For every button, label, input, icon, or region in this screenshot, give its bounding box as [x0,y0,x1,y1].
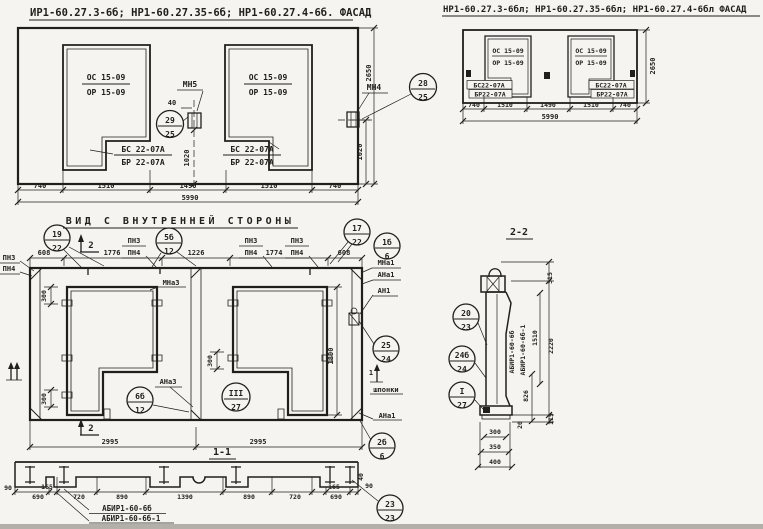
scan-edge-band [0,524,763,529]
dim-1490: 1490 [540,101,556,109]
pn4-label-left: ПН4 [3,265,16,273]
dim-1510b: 1510 [583,101,599,109]
pn3-label-3: ПН3 [291,237,304,245]
mna3-label: МНа3 [163,279,180,287]
callout-III: III [229,389,244,398]
pn3-label-1: ПН3 [128,237,141,245]
dim-20: 20 [516,421,524,429]
section1-marker-right: 1 [369,369,373,377]
dim-2650: 2650 [365,65,373,82]
dimension-ticks [15,25,377,205]
dim-690-r: 690 [330,493,342,501]
callout-25c: 25 [381,341,391,350]
section-2-2-drawing: 2-2 20 23 24б 24 I 27 АБИР1-60-6б АБИР1-… [449,227,555,470]
ana1-label: АНа1 [378,271,395,279]
dim-1510: 1510 [98,182,115,190]
dimension-lines [463,30,650,124]
pn4-label-2: ПН4 [245,249,258,257]
block2-mark-top: БС22-07А [595,82,626,90]
section2-marker-top: 2 [88,241,93,251]
callout-24: 24 [381,355,391,364]
callout-24d: 24 [457,365,467,374]
mna1-label: МНа1 [378,259,395,267]
dim-720-r: 720 [289,493,301,501]
callout-1b: 1б [382,237,392,247]
dim-300-c: 300 [206,355,214,367]
dim-2995-right: 2995 [250,438,267,446]
dim-1226: 1226 [188,249,205,257]
dim-740b: 740 [619,101,631,109]
dim-1490: 1490 [180,182,197,190]
dim-608-left: 608 [38,249,51,257]
dim-1390: 1390 [177,493,193,501]
dim-740: 740 [468,101,480,109]
dim-5990: 5990 [542,113,559,121]
anchor-plate-hatch [192,112,356,128]
dim-165-r: 165 [328,483,340,491]
axis-lines [194,100,372,186]
pn3-label-left: ПН3 [3,254,16,262]
block1-mark-bottom: БР22-07А [474,91,505,99]
blueprint-svg: ИР1-60.27.3-6б; НР1-60.27.35-6б; НР1-60.… [0,0,763,529]
section2-marker-bottom: 2 [88,424,93,434]
opening2-mark-bottom: ОР 15-09 [575,59,606,67]
block2-mark-top: БС 22-07А [230,145,274,154]
callout-19: 19 [52,230,62,239]
panel-mark-b: АБИР1-60-6б-1 [102,514,161,523]
dim-165-l: 165 [41,483,53,491]
dim-740b: 740 [329,182,342,190]
opening-inner-outlines [71,291,323,411]
dim-115: 115 [547,413,555,425]
shponki-label: шпонки [373,386,398,394]
anchor-block-hatch [487,276,499,292]
dim-90-r: 90 [365,482,373,490]
dim-5990: 5990 [182,194,199,202]
callout-23b: 23 [461,323,471,332]
dim-350: 350 [489,443,501,451]
dim-2650: 2650 [649,58,657,75]
dim-608-right: 608 [338,249,351,257]
dim-2995-left: 2995 [102,438,119,446]
dim-1020-left: 1020 [183,150,191,167]
opening1-mark-top: ОС 15-09 [87,73,126,82]
pn4-label-3: ПН4 [291,249,304,257]
callout-25b: 25 [418,93,428,102]
facade-mirror-title: НР1-60.27.3-6бл; НР1-60.27.35-6бл; НР1-6… [443,4,747,15]
opening1-mark-bottom: ОР 15-09 [87,88,126,97]
label-underlines [0,246,403,420]
callout-5b: 5б [164,232,174,242]
dim-2220: 2220 [547,338,555,354]
callout-6b: 6б [135,391,145,401]
opening1-mark-bottom: ОР 15-09 [492,59,523,67]
dim-1020-right: 1020 [356,144,364,161]
callout-20: 20 [461,309,471,318]
dim-890-r: 890 [243,493,255,501]
block1-mark-top: БС 22-07А [121,145,165,154]
facade-main-drawing: ИР1-60.27.3-6б; НР1-60.27.35-6б; НР1-60.… [15,7,437,205]
dim-40b: 40 [357,473,365,481]
section-1-1-title: 1-1 [213,447,231,458]
drawing-sheet: ИР1-60.27.3-6б; НР1-60.27.35-6б; НР1-60.… [0,0,763,529]
opening-outlines [67,287,327,415]
dim-826: 826 [522,390,530,402]
dim-40: 40 [168,99,176,107]
facade-main-title: ИР1-60.27.3-6б; НР1-60.27.35-6б; НР1-60.… [30,7,372,19]
inner-view-drawing: ВИД С ВНУТРЕННЕЙ СТОРОНЫ ПН3 ПН4 ПН3 ПН4… [0,214,403,461]
callout-25: 25 [165,130,175,139]
block2-mark-bottom: БР22-07А [596,91,627,99]
inner-view-title: ВИД С ВНУТРЕННЕЙ СТОРОНЫ [66,214,295,227]
opening2-mark-top: ОС 15-09 [249,73,288,82]
pn3-label-2: ПН3 [245,237,258,245]
callout-23n: 23 [385,500,395,509]
section-arrow-icon [78,234,84,242]
dim-1510: 1510 [497,101,513,109]
leader-lines [474,323,487,409]
callout-I: I [460,387,465,396]
callout-6b2: 6 [380,452,385,461]
callout-12: 12 [164,247,174,256]
callout-22b: 22 [352,238,362,247]
dim-315: 315 [546,272,554,284]
block1-mark-bottom: БР 22-07А [121,158,165,167]
section-2-2-title: 2-2 [510,227,528,238]
dimension-lines [478,262,554,468]
panel-mark-a-vertical: АБИР1-60-6б [508,330,516,373]
callout-24b: 24б [455,350,470,360]
block1-mark-top: БС22-07А [473,82,504,90]
anchor-mn5-label: МН5 [183,80,198,89]
dim-1510b: 1510 [261,182,278,190]
callout-29: 29 [165,116,175,125]
anchor-plate-icons [188,112,359,128]
section-1-1-drawing: 1-1 90 165 690 720 890 1390 890 720 165 … [4,447,403,523]
embedded-channel-icons [25,466,355,484]
dim-300d: 300 [489,428,501,436]
dim-1776: 1776 [104,249,121,257]
callout-23d: 23 [385,514,395,523]
dim-1800: 1800 [327,348,335,365]
panel-mark-a: АБИР1-60-6б [102,504,152,513]
dim-720-l: 720 [73,493,85,501]
ana3-label: АНа3 [160,378,177,386]
dim-690-l: 690 [32,493,44,501]
dim-740: 740 [34,182,47,190]
ana1-bottom-label: АНа1 [379,412,396,420]
dim-1510b: 1510 [531,330,539,346]
callout-27b: 27 [457,401,467,410]
dimension-lines [18,28,378,205]
panel-mark-b-vertical: АБИР1-60-6б-1 [519,324,527,375]
dim-300-a: 300 [40,290,48,302]
profile-bottom-outline [15,462,358,487]
callout-12b: 12 [135,406,145,415]
bottom-anchor-mark [483,407,490,413]
opening2-mark-bottom: ОР 15-09 [249,88,288,97]
pn4-label-1: ПН4 [128,249,141,257]
dim-90-l: 90 [4,484,12,492]
an1-anchor-hatch [349,313,359,325]
dim-1774: 1774 [266,249,283,257]
an1-label: АН1 [378,287,391,295]
callout-28: 28 [418,79,428,88]
dim-890-l: 890 [116,493,128,501]
callout-27: 27 [231,403,241,412]
dim-300-b: 300 [40,393,48,405]
block2-mark-bottom: БР 22-07А [230,158,274,167]
callout-22: 22 [52,244,62,253]
dim-400: 400 [489,458,501,466]
opening2-mark-top: ОС 15-09 [575,47,606,55]
section-arrow-icons [8,362,380,371]
callout-2b: 2б [377,437,387,447]
callout-17: 17 [352,224,362,233]
facade-mirror-drawing: НР1-60.27.3-6бл; НР1-60.27.35-6бл; НР1-6… [442,4,760,124]
opening1-mark-top: ОС 15-09 [492,47,523,55]
